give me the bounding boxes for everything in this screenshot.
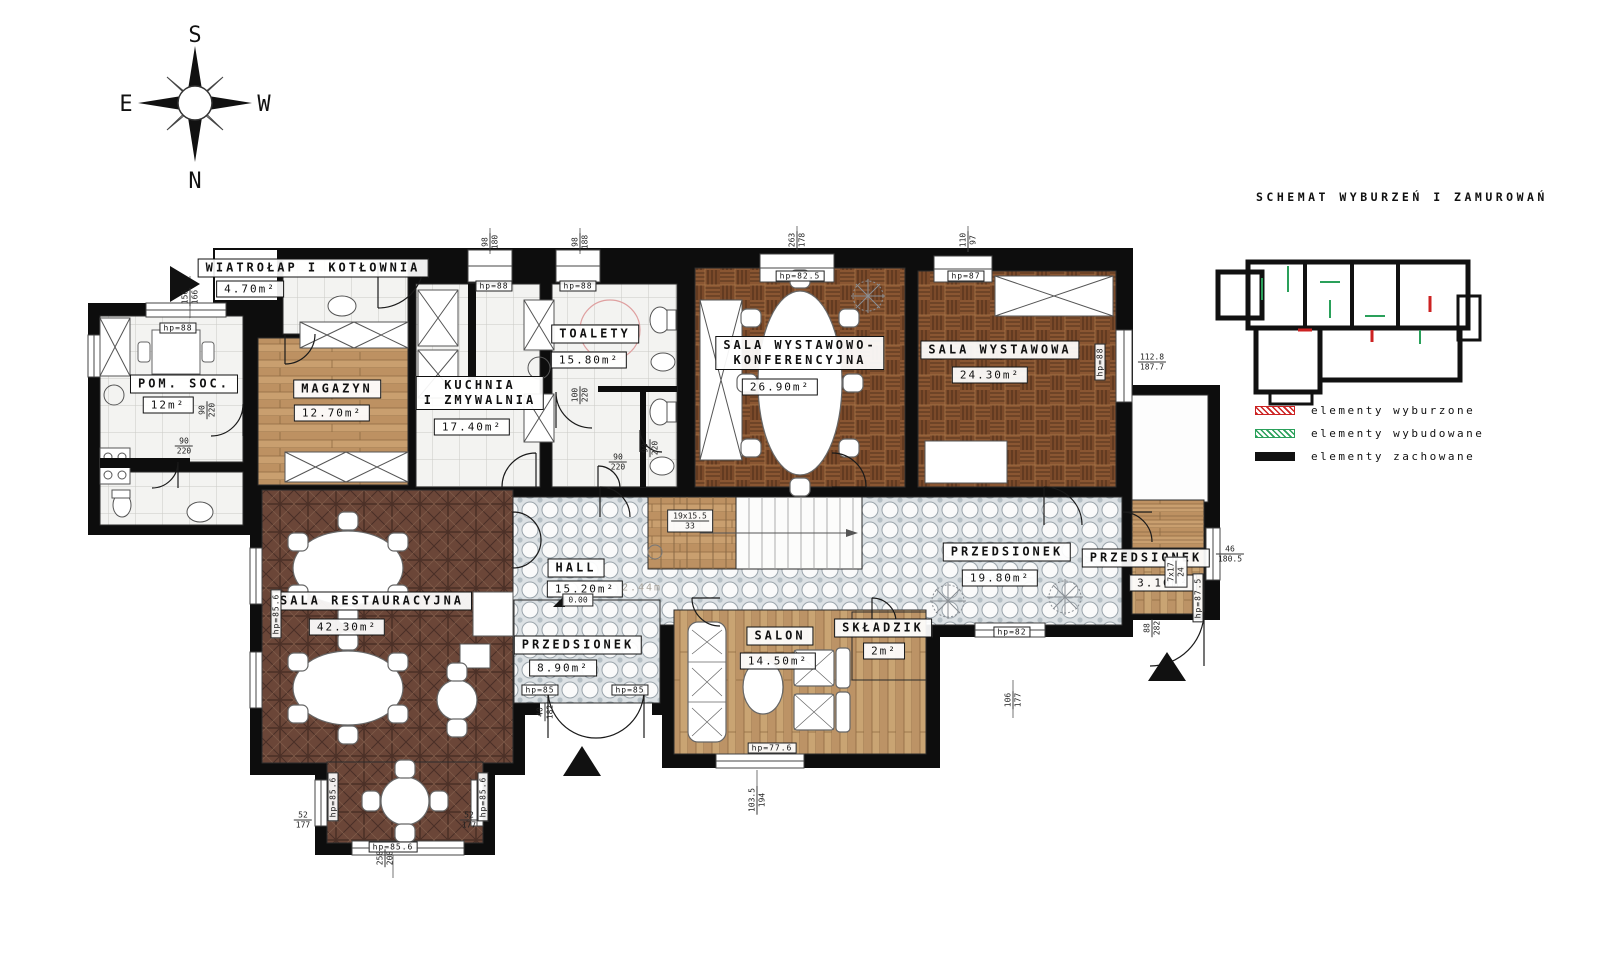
- legend-item-built: elementy wybudowane: [1255, 422, 1484, 445]
- staircase-annex: [1132, 500, 1204, 548]
- floor-plan-drawing: S N E W: [0, 0, 1600, 977]
- wall-notch: [215, 250, 277, 300]
- legend-swatch-demolished-icon: [1255, 406, 1295, 415]
- legend-label-demolished: elementy wyburzone: [1311, 404, 1475, 417]
- compass-letter-n: N: [188, 169, 201, 194]
- legend-item-preserved: elementy zachowane: [1255, 445, 1484, 468]
- mini-plan: [1218, 262, 1480, 404]
- legend-swatch-built-icon: [1255, 429, 1295, 438]
- compass-letter-e: E: [119, 92, 132, 117]
- schematic-title: SCHEMAT WYBURZEŃ I ZAMUROWAŃ: [1256, 190, 1548, 204]
- floor-plan-canvas: S N E W: [0, 0, 1600, 977]
- compass-letter-w: W: [257, 92, 271, 117]
- legend: elementy wyburzone elementy wybudowane e…: [1255, 399, 1484, 468]
- compass-letter-s: S: [188, 23, 201, 48]
- legend-label-built: elementy wybudowane: [1311, 427, 1484, 440]
- floor-skladzik: [852, 612, 926, 680]
- staircase-main: [648, 497, 862, 569]
- legend-item-demolished: elementy wyburzone: [1255, 399, 1484, 422]
- floor-przedsionek-s: [514, 600, 660, 703]
- legend-label-preserved: elementy zachowane: [1311, 450, 1475, 463]
- legend-swatch-preserved-icon: [1255, 452, 1295, 461]
- compass-rose: S N E W: [119, 23, 271, 194]
- floor-annex-room: [1132, 395, 1208, 502]
- floor-przedsionek-ne: [1132, 548, 1204, 614]
